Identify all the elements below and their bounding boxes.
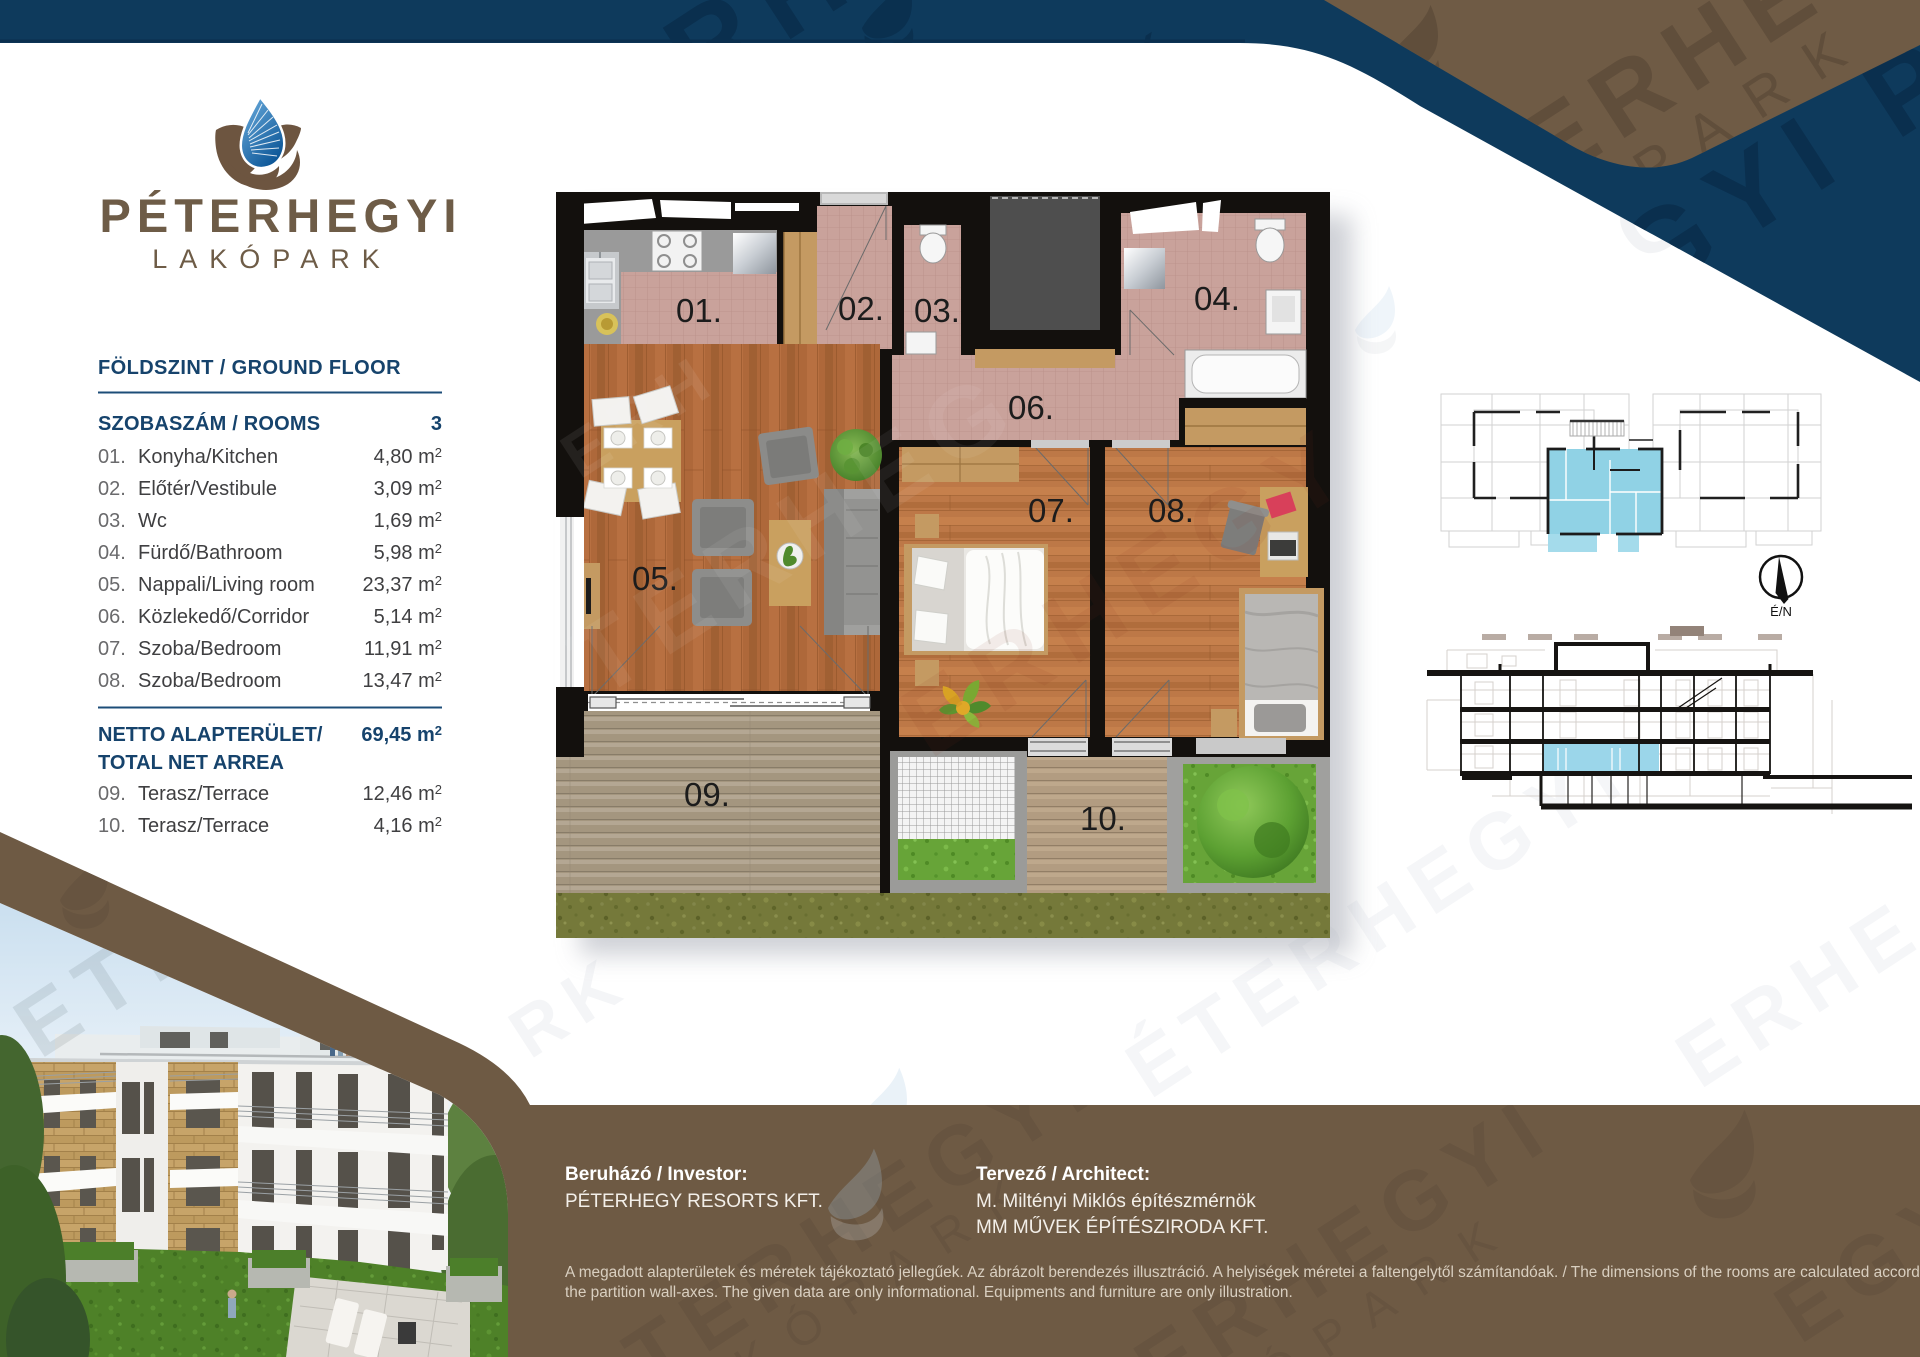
svg-text:01.: 01. — [676, 292, 722, 329]
svg-text:3,09 m2: 3,09 m2 — [374, 477, 442, 500]
svg-text:05.: 05. — [98, 574, 126, 596]
svg-text:4,16 m2: 4,16 m2 — [374, 814, 442, 837]
svg-text:07.: 07. — [1028, 492, 1074, 529]
svg-text:02.: 02. — [98, 478, 126, 500]
svg-text:1,69 m2: 1,69 m2 — [374, 509, 442, 532]
svg-text:10.: 10. — [1080, 800, 1126, 837]
svg-text:TOTAL NET ARREA: TOTAL NET ARREA — [98, 752, 284, 774]
svg-text:03.: 03. — [98, 510, 126, 532]
svg-text:the partition wall-axes. The g: the partition wall-axes. The given data … — [565, 1284, 1293, 1301]
svg-text:4,80 m2: 4,80 m2 — [374, 445, 442, 468]
svg-text:Előtér/Vestibule: Előtér/Vestibule — [138, 478, 277, 500]
svg-text:08.: 08. — [98, 670, 126, 692]
svg-text:Szoba/Bedroom: Szoba/Bedroom — [138, 638, 281, 660]
svg-text:69,45 m2: 69,45 m2 — [361, 723, 442, 746]
svg-text:Tervező / Architect:: Tervező / Architect: — [976, 1164, 1150, 1185]
svg-text:Szoba/Bedroom: Szoba/Bedroom — [138, 670, 281, 692]
svg-text:SZOBASZÁM / ROOMS: SZOBASZÁM / ROOMS — [98, 412, 320, 435]
svg-text:12,46 m2: 12,46 m2 — [363, 782, 443, 805]
svg-text:M. Miltényi Miklós építészmérn: M. Miltényi Miklós építészmérnök — [976, 1191, 1256, 1212]
svg-text:Beruházó / Investor:: Beruházó / Investor: — [565, 1164, 748, 1185]
svg-text:Wc: Wc — [138, 510, 167, 532]
svg-text:FÖLDSZINT / GROUND FLOOR: FÖLDSZINT / GROUND FLOOR — [98, 356, 401, 379]
svg-text:A megadott alapterületek és mé: A megadott alapterületek és méretek tájé… — [565, 1264, 1920, 1281]
svg-text:Nappali/Living room: Nappali/Living room — [138, 574, 315, 596]
svg-text:MM MŰVEK ÉPÍTÉSZIRODA KFT.: MM MŰVEK ÉPÍTÉSZIRODA KFT. — [976, 1216, 1268, 1238]
svg-text:PÉTERHEGY RESORTS KFT.: PÉTERHEGY RESORTS KFT. — [565, 1191, 823, 1212]
svg-text:Fürdő/Bathroom: Fürdő/Bathroom — [138, 542, 283, 564]
svg-text:03.: 03. — [914, 292, 960, 329]
svg-text:07.: 07. — [98, 638, 126, 660]
svg-text:04.: 04. — [1194, 280, 1240, 317]
svg-text:5,98 m2: 5,98 m2 — [374, 541, 442, 564]
svg-text:23,37 m2: 23,37 m2 — [363, 573, 443, 596]
svg-text:PÉTERHEGYI: PÉTERHEGYI — [100, 189, 463, 242]
svg-text:04.: 04. — [98, 542, 126, 564]
svg-text:3: 3 — [431, 413, 442, 435]
svg-text:Terasz/Terrace: Terasz/Terrace — [138, 815, 269, 837]
svg-text:É/N: É/N — [1770, 604, 1792, 619]
svg-text:NETTO ALAPTERÜLET/: NETTO ALAPTERÜLET/ — [98, 723, 323, 746]
svg-text:5,14 m2: 5,14 m2 — [374, 605, 442, 628]
svg-text:13,47 m2: 13,47 m2 — [363, 669, 443, 692]
svg-text:Konyha/Kitchen: Konyha/Kitchen — [138, 446, 278, 468]
svg-text:Közlekedő/Corridor: Közlekedő/Corridor — [138, 606, 310, 628]
svg-text:09.: 09. — [684, 776, 730, 813]
svg-text:10.: 10. — [98, 815, 126, 837]
svg-text:01.: 01. — [98, 446, 126, 468]
svg-text:06.: 06. — [98, 606, 126, 628]
svg-text:09.: 09. — [98, 783, 126, 805]
svg-text:11,91 m2: 11,91 m2 — [364, 637, 442, 660]
svg-text:LAKÓPARK: LAKÓPARK — [152, 243, 392, 274]
svg-text:Terasz/Terrace: Terasz/Terrace — [138, 783, 269, 805]
svg-text:02.: 02. — [838, 290, 884, 327]
